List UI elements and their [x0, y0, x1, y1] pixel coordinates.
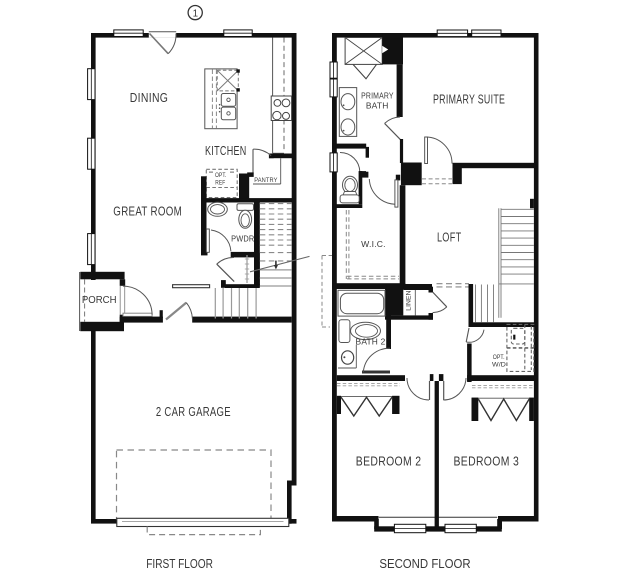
svg-text:BEDROOM 2: BEDROOM 2 — [356, 454, 422, 468]
svg-text:1: 1 — [193, 8, 198, 19]
svg-text:KITCHEN: KITCHEN — [205, 144, 247, 158]
svg-text:BATH 2: BATH 2 — [356, 338, 386, 347]
svg-text:GREAT ROOM: GREAT ROOM — [113, 204, 182, 218]
svg-text:PWDR: PWDR — [231, 235, 254, 244]
svg-text:LOFT: LOFT — [437, 231, 462, 245]
svg-text:LINEN: LINEN — [407, 290, 413, 310]
svg-text:SECOND FLOOR: SECOND FLOOR — [379, 556, 470, 571]
svg-text:REF: REF — [215, 180, 225, 186]
svg-text:OPT.: OPT. — [215, 173, 227, 179]
svg-text:PANTRY: PANTRY — [254, 178, 277, 184]
svg-text:PRIMARY SUITE: PRIMARY SUITE — [433, 92, 505, 106]
svg-text:DINING: DINING — [130, 91, 169, 105]
svg-text:2 CAR GARAGE: 2 CAR GARAGE — [156, 405, 231, 419]
svg-text:OPT.: OPT. — [493, 355, 505, 361]
svg-text:W/D: W/D — [492, 363, 507, 369]
svg-text:PRIMARY: PRIMARY — [361, 91, 394, 100]
svg-text:W.I.C.: W.I.C. — [361, 240, 386, 249]
svg-text:BATH: BATH — [366, 102, 389, 111]
svg-text:PORCH: PORCH — [82, 295, 117, 306]
svg-text:BEDROOM 3: BEDROOM 3 — [454, 454, 520, 468]
svg-text:FIRST FLOOR: FIRST FLOOR — [146, 556, 213, 571]
